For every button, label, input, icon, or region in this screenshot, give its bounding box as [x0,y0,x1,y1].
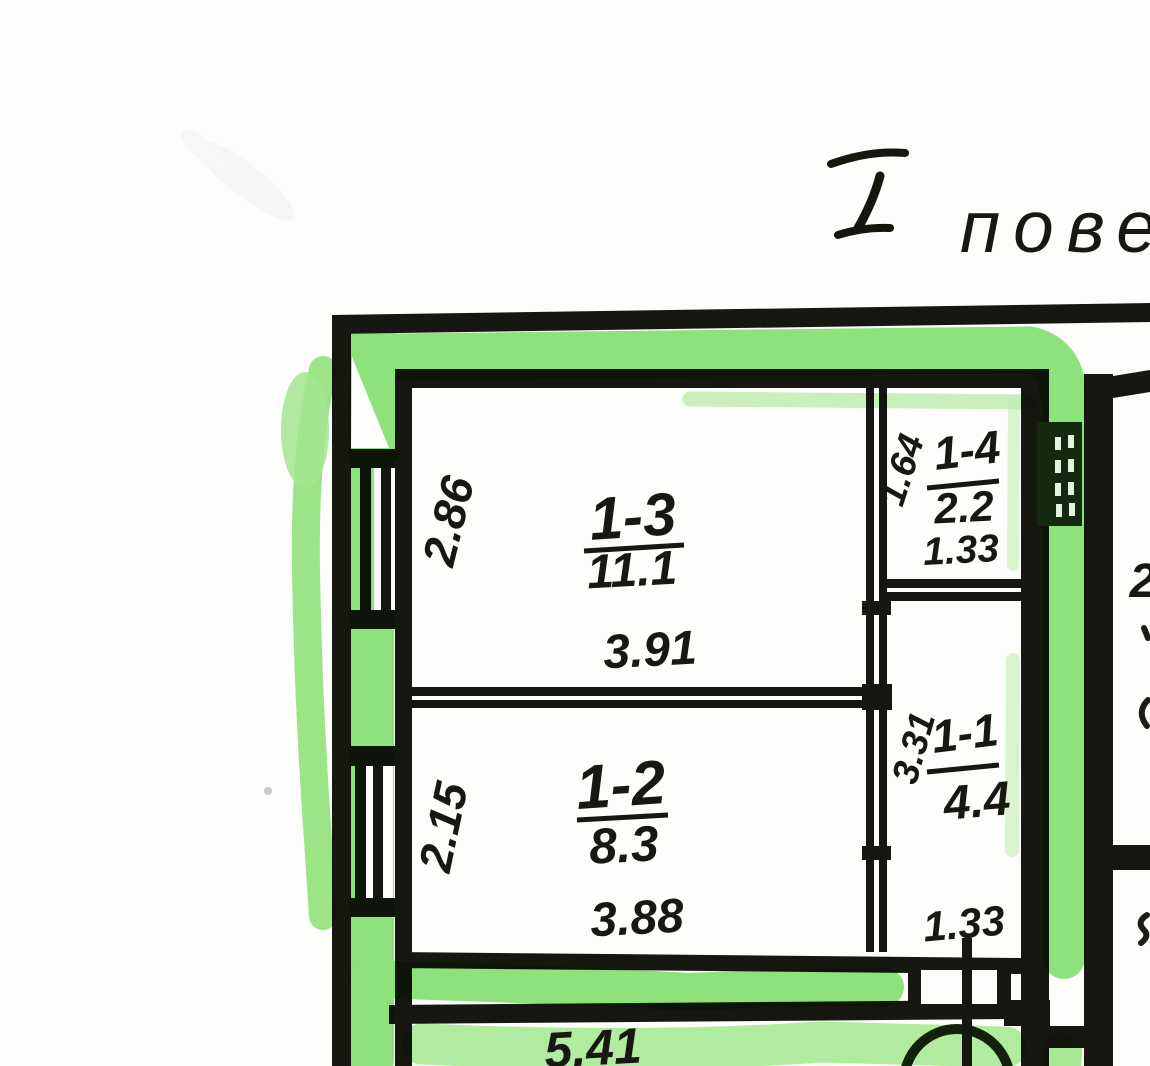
svg-text:1-4: 1-4 [931,420,1003,480]
svg-text:1-2: 1-2 [574,748,668,823]
svg-text:1.33: 1.33 [922,527,1000,574]
svg-text:8.3: 8.3 [588,815,661,875]
svg-text:3.91: 3.91 [602,622,698,680]
svg-text:1.33: 1.33 [921,897,1007,951]
svg-text:4.4: 4.4 [940,772,1012,831]
svg-text:11.1: 11.1 [586,542,679,600]
svg-text:пове: пове [960,187,1150,268]
svg-text:1-1: 1-1 [929,703,1001,763]
svg-text:2: 2 [1129,555,1150,608]
svg-text:5.41: 5.41 [543,1017,643,1066]
svg-text:3.88: 3.88 [589,890,685,948]
svg-text:2.2: 2.2 [932,482,995,533]
